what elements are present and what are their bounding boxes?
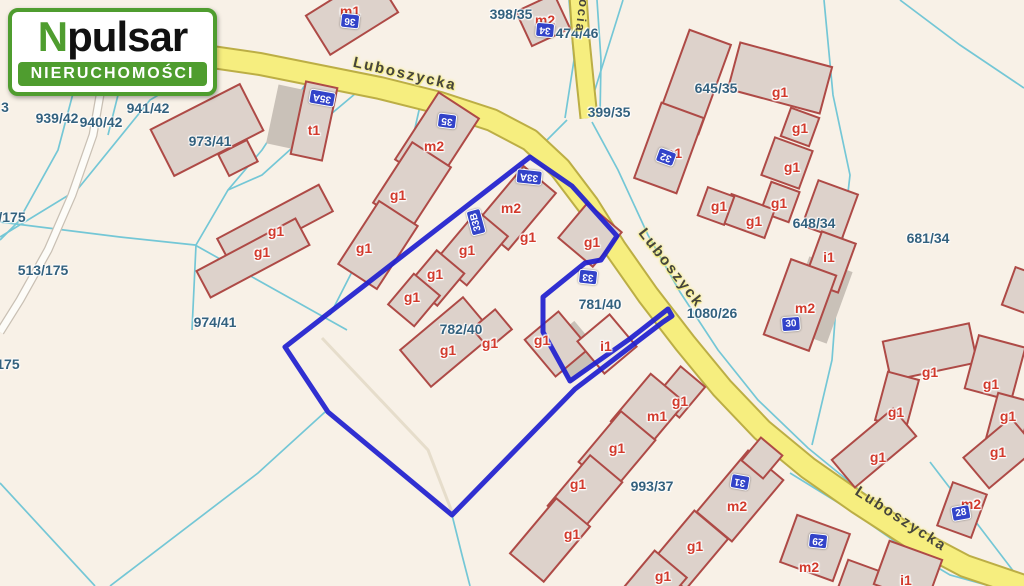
address-marker[interactable]: 35 (437, 112, 458, 129)
agency-logo: Npulsar NIERUCHOMOŚCI (8, 8, 217, 96)
address-marker[interactable]: 33 (578, 269, 599, 286)
agency-logo-name: pulsar (67, 13, 187, 60)
address-marker[interactable]: 31 (729, 473, 750, 491)
agency-logo-tagline: NIERUCHOMOŚCI (18, 62, 207, 86)
agency-logo-brand: Npulsar (12, 12, 213, 62)
address-marker[interactable]: 36 (340, 13, 361, 30)
address-marker[interactable]: 33A (515, 168, 543, 186)
map-viewport[interactable]: 3939/42940/42941/42973/41/175513/175/175… (0, 0, 1024, 586)
address-marker[interactable]: 30 (781, 316, 801, 332)
agency-logo-letter: N (38, 13, 67, 60)
address-marker[interactable]: 34 (535, 22, 555, 39)
address-marker[interactable]: 29 (808, 533, 829, 550)
